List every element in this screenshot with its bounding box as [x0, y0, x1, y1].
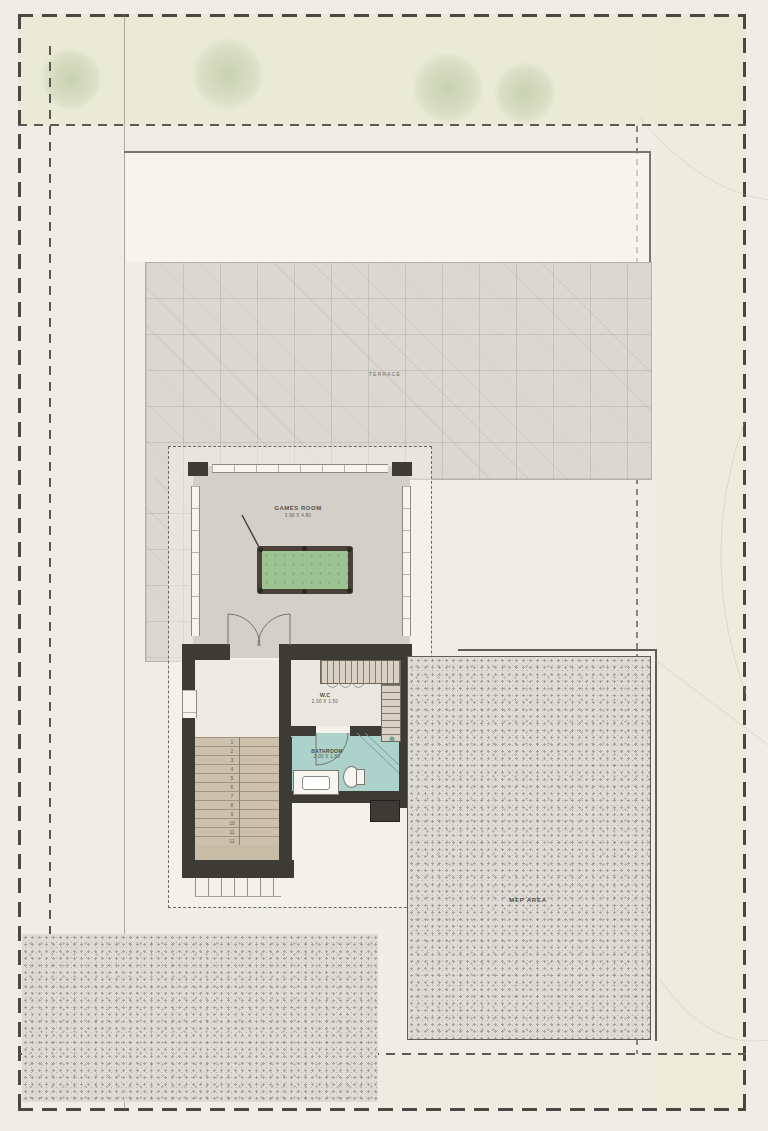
- site-plan-canvas: TERRACE GAMES ROOM 3.90 X 4.80 123456789…: [0, 0, 768, 1131]
- plan-linework: [0, 0, 768, 1131]
